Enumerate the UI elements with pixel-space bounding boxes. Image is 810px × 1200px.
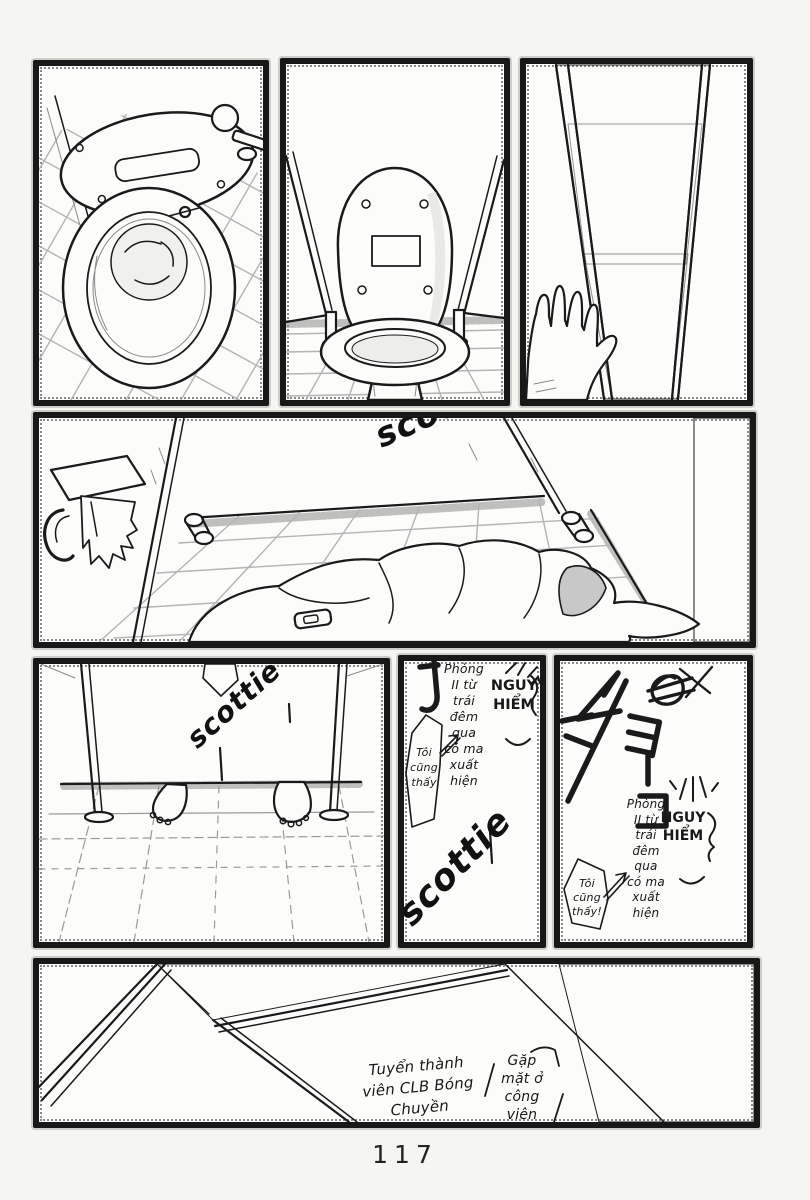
wall-tone (559, 964, 754, 1122)
toilet-bowl (321, 319, 469, 400)
wall-warning-text: Phòng II từ trái đêm qua có ma xuất hiện (434, 661, 494, 789)
door-top-edge (215, 970, 509, 1032)
witness-text: Tôi cũng thấy (405, 745, 443, 790)
partition-leg-left (41, 664, 113, 822)
dropped-pants (189, 540, 699, 642)
panel-graffiti-wall-left: Phòng II từ trái đêm qua có ma xuất hiện… (398, 655, 546, 948)
stall-wall-left (286, 152, 339, 348)
curve-mark (680, 877, 704, 884)
panel-door-top-gap: Tuyển thành viên CLB Bóng Chuyền Gặp mặt… (33, 958, 760, 1128)
panel-toilet-front-view (280, 58, 510, 406)
dark-doorway-art (526, 64, 747, 400)
danger-text: NGUY HIỂM (658, 809, 708, 845)
panel-dark-doorway (520, 58, 753, 406)
panel-stall-floor: scott (33, 412, 756, 648)
dark-gap-wedge (157, 964, 505, 1020)
toilet-front-view-art (286, 64, 504, 400)
witness-text: Tôi cũng thấy! (566, 877, 608, 919)
wall-tone (694, 418, 750, 642)
tiled-floor (39, 784, 384, 942)
stall-partition-right-edge (469, 418, 593, 542)
toilet-bowl (63, 188, 235, 388)
curly-mark (708, 813, 715, 861)
left-wall-edge (39, 964, 171, 1106)
danger-text: NGUY HIỂM (488, 677, 540, 715)
curve-mark (506, 739, 530, 745)
toilet-paper-holder (45, 456, 145, 568)
panel-toilet-top-view (33, 60, 269, 406)
scribble-knot (648, 667, 712, 704)
panel-stall-feet: scottie (33, 658, 390, 948)
manga-page: scott (0, 0, 810, 1200)
wedge-highlight (163, 970, 209, 1014)
panel-graffiti-wall-right: Phòng II từ trái đêm qua có ma xuất hiện… (554, 655, 753, 948)
meet-note-text: Gặp mặt ở công viên (491, 1052, 553, 1124)
toilet-top-view-art (39, 66, 263, 400)
page-number: 117 (340, 1140, 470, 1169)
anger-mark-icon (670, 777, 718, 801)
partition-leg-right (320, 664, 383, 820)
door-front-edge (213, 1018, 357, 1122)
stall-partition-left-edge (133, 418, 213, 642)
recruit-note-text: Tuyển thành viên CLB Bóng Chuyền (354, 1051, 481, 1124)
toilet-lid-raised (338, 168, 452, 336)
bare-feet (150, 782, 311, 827)
